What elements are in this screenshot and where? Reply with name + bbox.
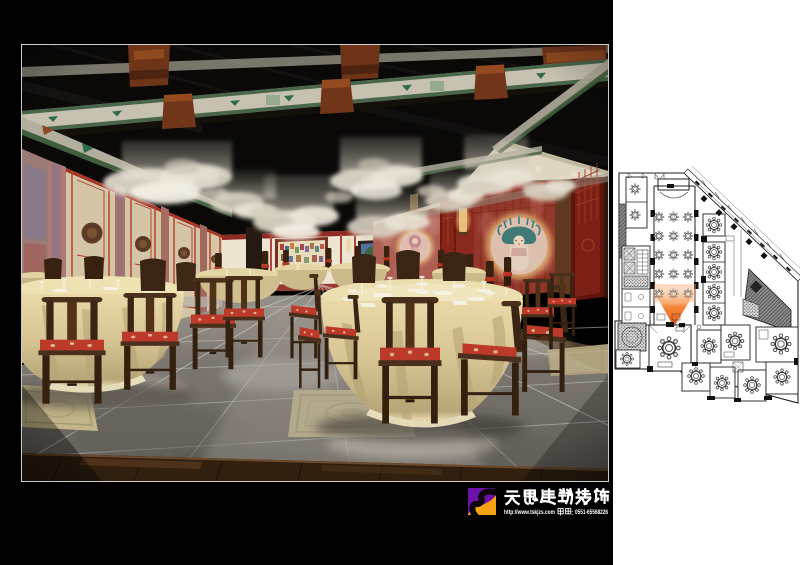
svg-text:0551-65568226: 0551-65568226 <box>575 509 608 516</box>
svg-text:http://www.tskjzs.com: http://www.tskjzs.com <box>504 509 555 516</box>
